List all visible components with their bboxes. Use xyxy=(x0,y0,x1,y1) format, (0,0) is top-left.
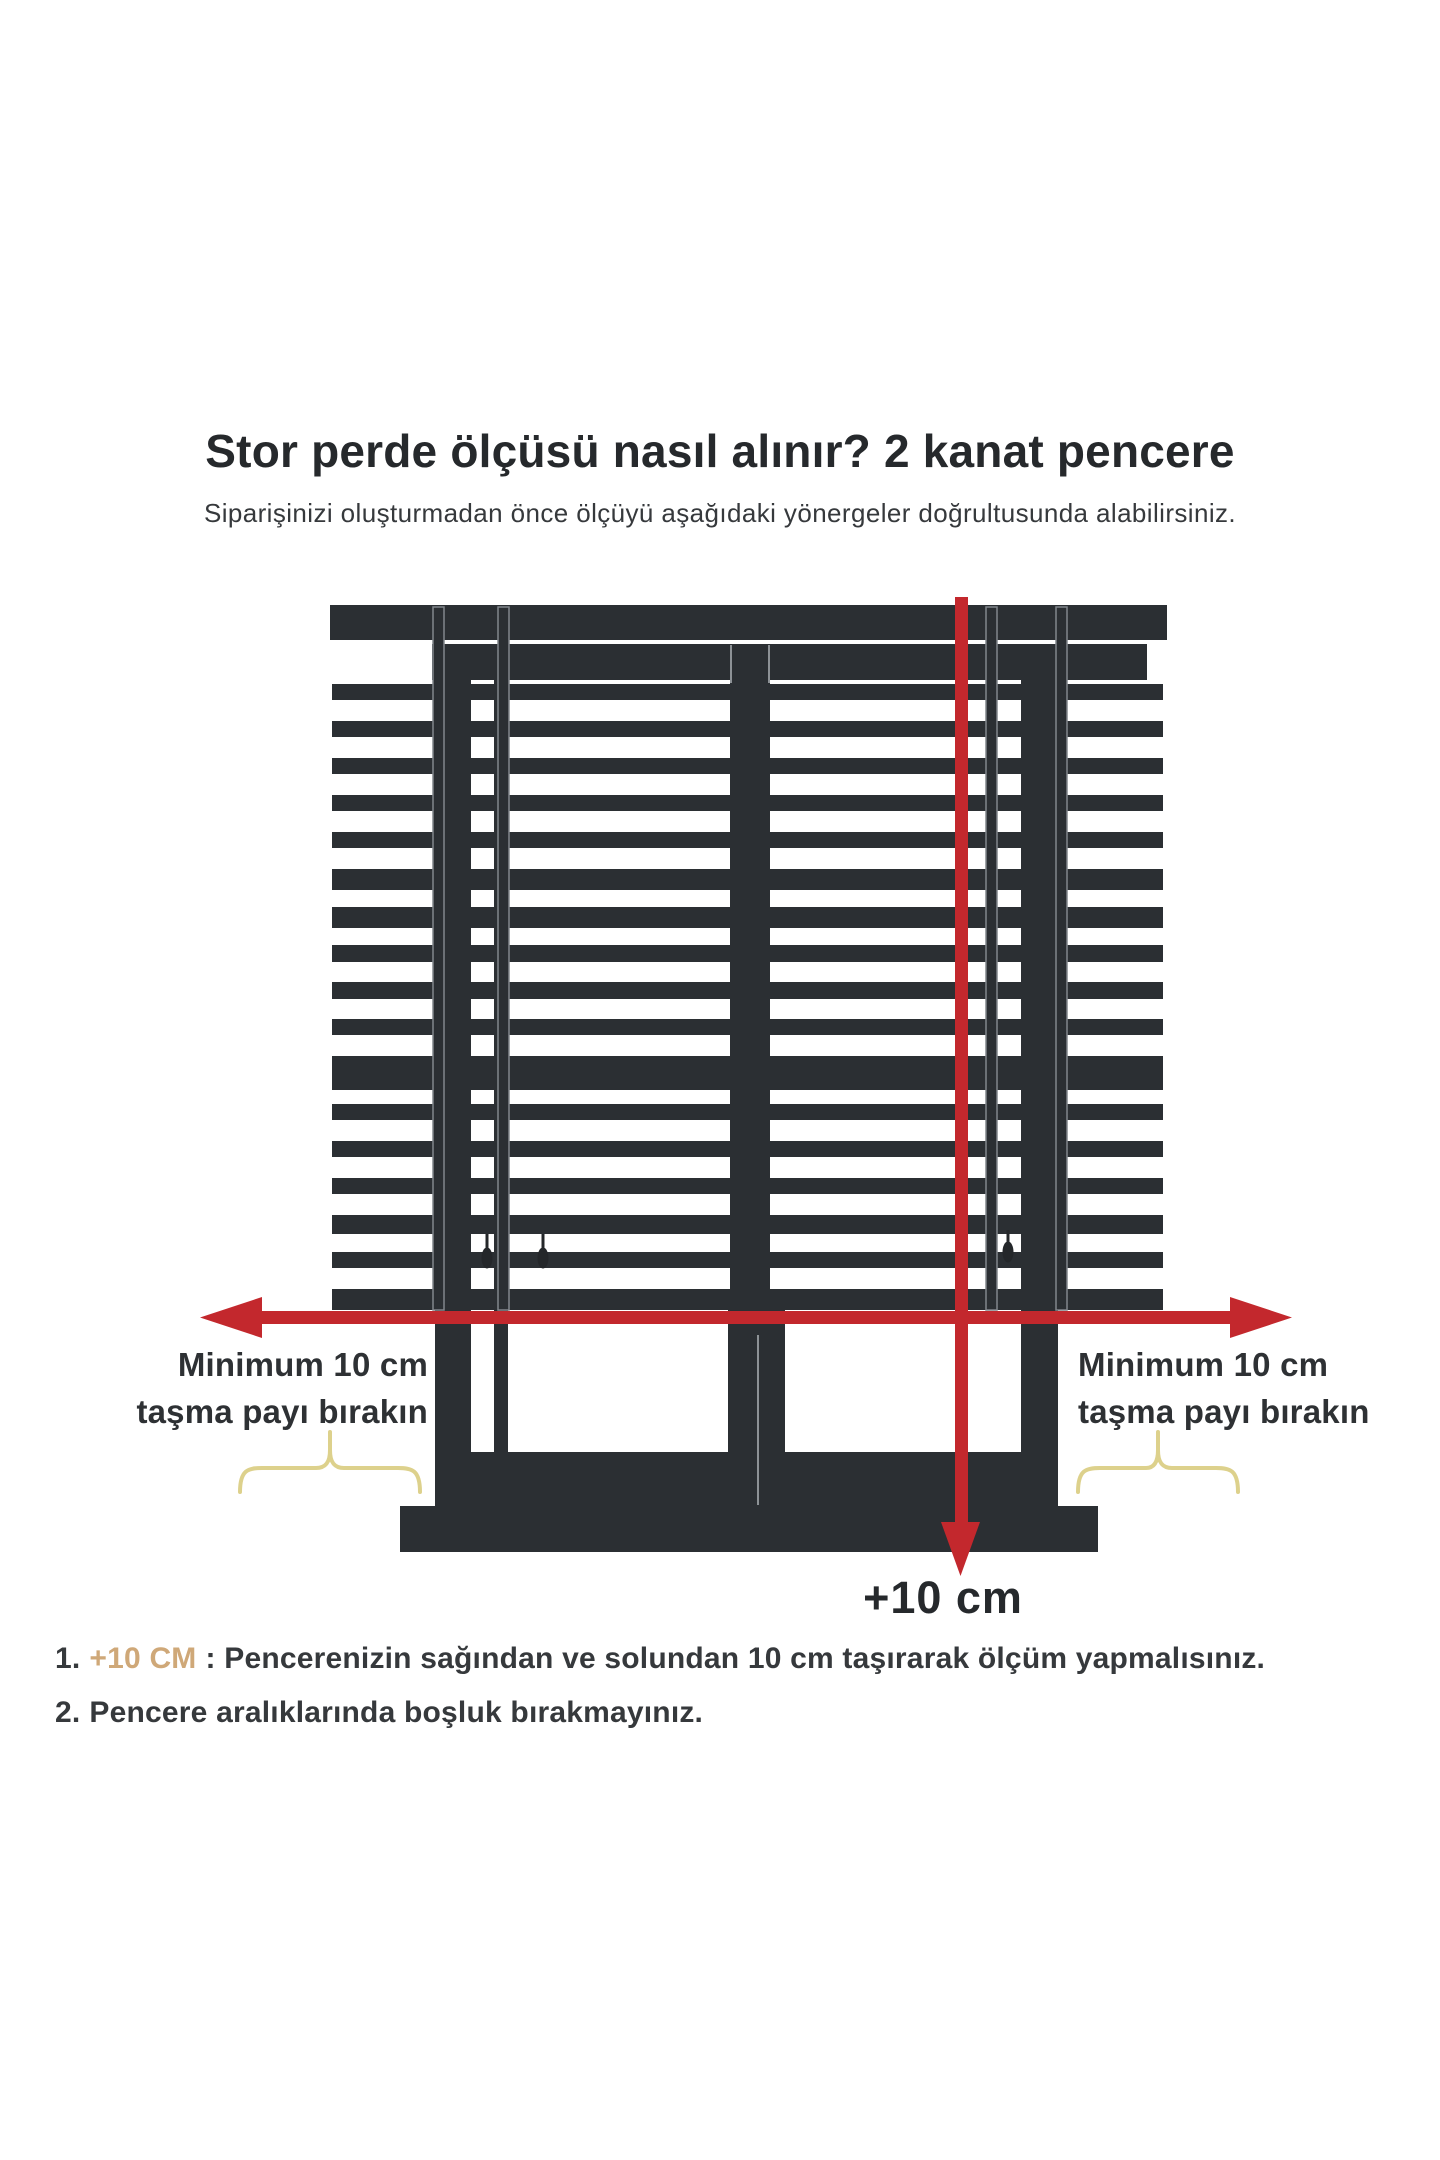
window-sill xyxy=(400,1506,1098,1552)
headrail-valance xyxy=(432,644,1147,680)
headrail-top xyxy=(330,605,1167,640)
instruction-2-number: 2. xyxy=(55,1696,80,1729)
instruction-2-text: Pencere aralıklarında boşluk bırakmayını… xyxy=(89,1696,703,1729)
page-subtitle: Siparişinizi oluşturmadan önce ölçüyü aş… xyxy=(0,498,1440,529)
right-overhang-label-line2: taşma payı bırakın xyxy=(1078,1388,1370,1435)
measurement-diagram xyxy=(0,0,1440,2160)
right-overhang-brace xyxy=(1078,1432,1238,1492)
left-overhang-label-line2: taşma payı bırakın xyxy=(136,1388,428,1435)
page-title: Stor perde ölçüsü nasıl alınır? 2 kanat … xyxy=(0,424,1440,478)
right-overhang-label-line1: Minimum 10 cm xyxy=(1078,1341,1370,1388)
measurement-guide-page: Stor perde ölçüsü nasıl alınır? 2 kanat … xyxy=(0,0,1440,2160)
right-overhang-label: Minimum 10 cm taşma payı bırakın xyxy=(1078,1341,1370,1435)
bottom-arrow-label: +10 cm xyxy=(813,1572,1073,1624)
instruction-1-number: 1. xyxy=(55,1642,80,1675)
left-overhang-label-line1: Minimum 10 cm xyxy=(136,1341,428,1388)
arrowhead-left xyxy=(200,1297,262,1338)
instruction-1-highlight: +10 CM xyxy=(89,1642,196,1675)
instruction-item-2: 2.Pencere aralıklarında boşluk bırakmayı… xyxy=(55,1696,703,1730)
arrowhead-right xyxy=(1230,1297,1292,1338)
instruction-item-1: 1.+10 CM: Pencerenizin sağından ve solun… xyxy=(55,1642,1265,1676)
left-overhang-brace xyxy=(240,1432,420,1492)
instruction-1-text: : Pencerenizin sağından ve solundan 10 c… xyxy=(206,1642,1266,1675)
left-overhang-label: Minimum 10 cm taşma payı bırakın xyxy=(136,1341,428,1435)
